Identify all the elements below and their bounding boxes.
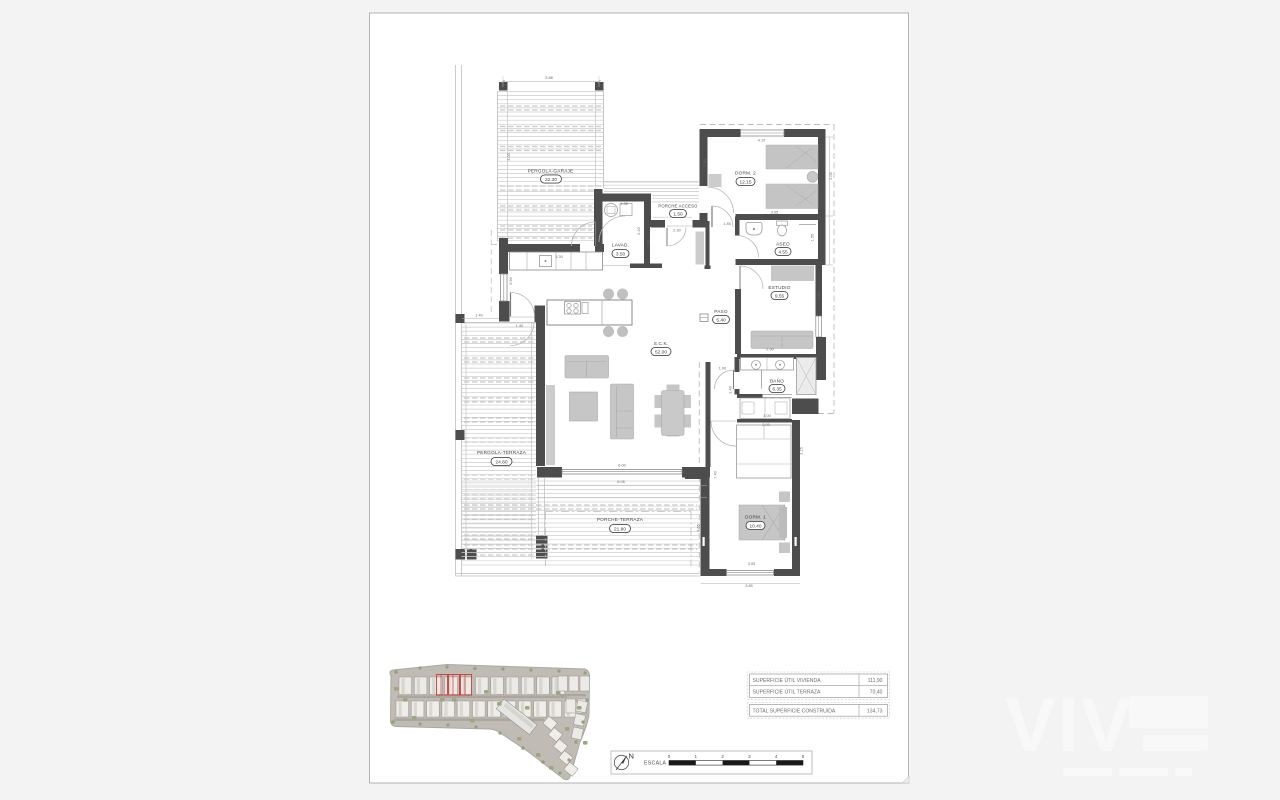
svg-text:2.50: 2.50 [703,159,707,166]
svg-text:1.55: 1.55 [811,234,815,241]
svg-text:2.00: 2.00 [762,423,769,427]
svg-text:70,40: 70,40 [870,690,883,696]
svg-text:ESTUDIO: ESTUDIO [768,285,790,290]
svg-text:6.00: 6.00 [618,464,625,468]
svg-text:1.40: 1.40 [516,324,523,328]
svg-text:3.00: 3.00 [763,414,770,418]
svg-text:12.15: 12.15 [739,179,751,185]
svg-text:DORM. 1: DORM. 1 [745,515,766,520]
svg-text:21.80: 21.80 [614,526,626,532]
svg-text:5: 5 [802,754,805,759]
svg-text:1.50: 1.50 [673,211,683,217]
svg-text:3.50: 3.50 [616,251,626,257]
svg-text:LAVAD.: LAVAD. [612,243,629,248]
svg-text:2.40: 2.40 [729,386,733,393]
svg-text:3.85: 3.85 [745,584,752,588]
svg-text:0.90: 0.90 [509,277,513,284]
svg-text:ESCALA: ESCALA [644,761,667,767]
svg-text:3.05: 3.05 [771,211,778,215]
svg-text:9.55: 9.55 [775,293,785,299]
svg-text:4.55: 4.55 [778,249,788,255]
svg-text:PERGOLA-GARAJE: PERGOLA-GARAJE [528,169,574,174]
svg-text:4.00: 4.00 [507,153,511,160]
svg-text:1.85: 1.85 [723,222,730,226]
svg-text:2.05: 2.05 [829,172,833,179]
svg-text:6.08: 6.08 [617,480,624,484]
svg-text:4.90: 4.90 [817,292,821,299]
svg-text:1: 1 [695,754,698,759]
svg-text:PORCHE ACCESO: PORCHE ACCESO [658,204,698,209]
svg-text:52.00: 52.00 [655,349,667,355]
svg-text:5.40: 5.40 [716,317,726,323]
svg-text:0: 0 [668,754,671,759]
svg-text:3.05: 3.05 [748,562,755,566]
svg-text:TOTAL SUPERFICIE CONSTRUIDA: TOTAL SUPERFICIE CONSTRUIDA [753,708,836,714]
svg-text:SUPERFICIE ÚTIL VIVIENDA: SUPERFICIE ÚTIL VIVIENDA [753,677,822,684]
svg-text:10.40: 10.40 [749,523,761,529]
svg-text:3.30: 3.30 [555,255,562,259]
svg-text:4.10: 4.10 [758,139,765,143]
svg-text:PORCHE-TERRAZA: PORCHE-TERRAZA [597,517,644,522]
svg-text:2.30: 2.30 [673,229,680,233]
svg-text:9.65: 9.65 [697,524,701,531]
svg-text:S.C.K.: S.C.K. [654,341,669,346]
svg-text:4: 4 [775,754,778,759]
svg-text:ASEO: ASEO [776,242,790,247]
svg-text:2: 2 [721,754,724,759]
svg-text:5.88: 5.88 [545,76,552,80]
svg-text:24.80: 24.80 [495,459,507,465]
svg-text:7.40: 7.40 [714,471,718,478]
svg-text:134,73: 134,73 [867,708,883,714]
svg-text:22.30: 22.30 [545,177,557,183]
svg-text:1.38: 1.38 [620,202,627,206]
svg-text:2.90: 2.90 [766,348,773,352]
svg-text:6.35: 6.35 [772,386,782,392]
svg-text:2.15: 2.15 [800,447,804,454]
svg-text:DORM. 2: DORM. 2 [735,171,756,176]
svg-text:1.00: 1.00 [719,367,726,371]
svg-text:SUPERFICIE ÚTIL TERRAZA: SUPERFICIE ÚTIL TERRAZA [753,689,822,696]
svg-text:VIV: VIV [1005,683,1134,768]
svg-text:1.40: 1.40 [475,314,482,318]
svg-text:111,90: 111,90 [868,678,883,684]
svg-text:N: N [629,752,634,761]
svg-text:PASO: PASO [714,309,728,314]
svg-text:3: 3 [748,754,751,759]
svg-text:BAÑO: BAÑO [770,378,784,384]
svg-text:2.20: 2.20 [637,227,641,234]
svg-text:PERGOLA-TERRAZA: PERGOLA-TERRAZA [477,450,527,455]
svg-text:1.28: 1.28 [647,240,651,247]
